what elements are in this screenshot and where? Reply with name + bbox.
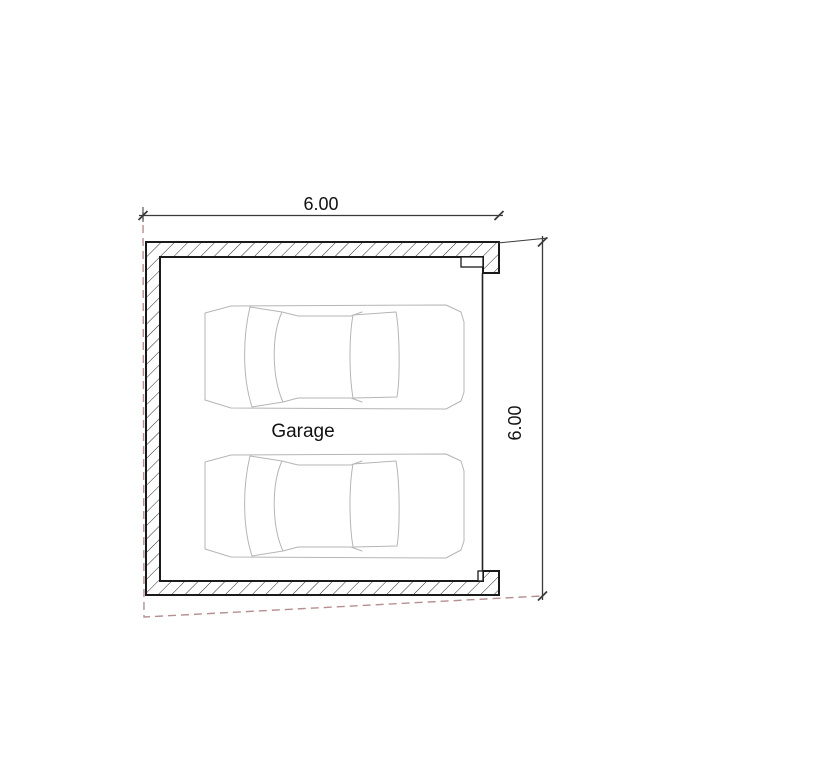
- door-jamb-bottom-notch: [478, 571, 483, 581]
- car-bottom: [205, 454, 464, 558]
- dimension-height-ext-top: [498, 238, 548, 243]
- door-jamb-top-notch: [461, 257, 483, 267]
- dimension-width-label: 6.00: [303, 194, 338, 214]
- dimension-height-label: 6.00: [505, 405, 525, 440]
- garage-walls: [146, 242, 499, 595]
- floor-plan-canvas: Garage 6.00 6.00: [0, 0, 837, 759]
- floor-plan-page: Garage 6.00 6.00: [0, 0, 837, 759]
- room-label: Garage: [271, 421, 334, 442]
- car-top: [205, 305, 464, 409]
